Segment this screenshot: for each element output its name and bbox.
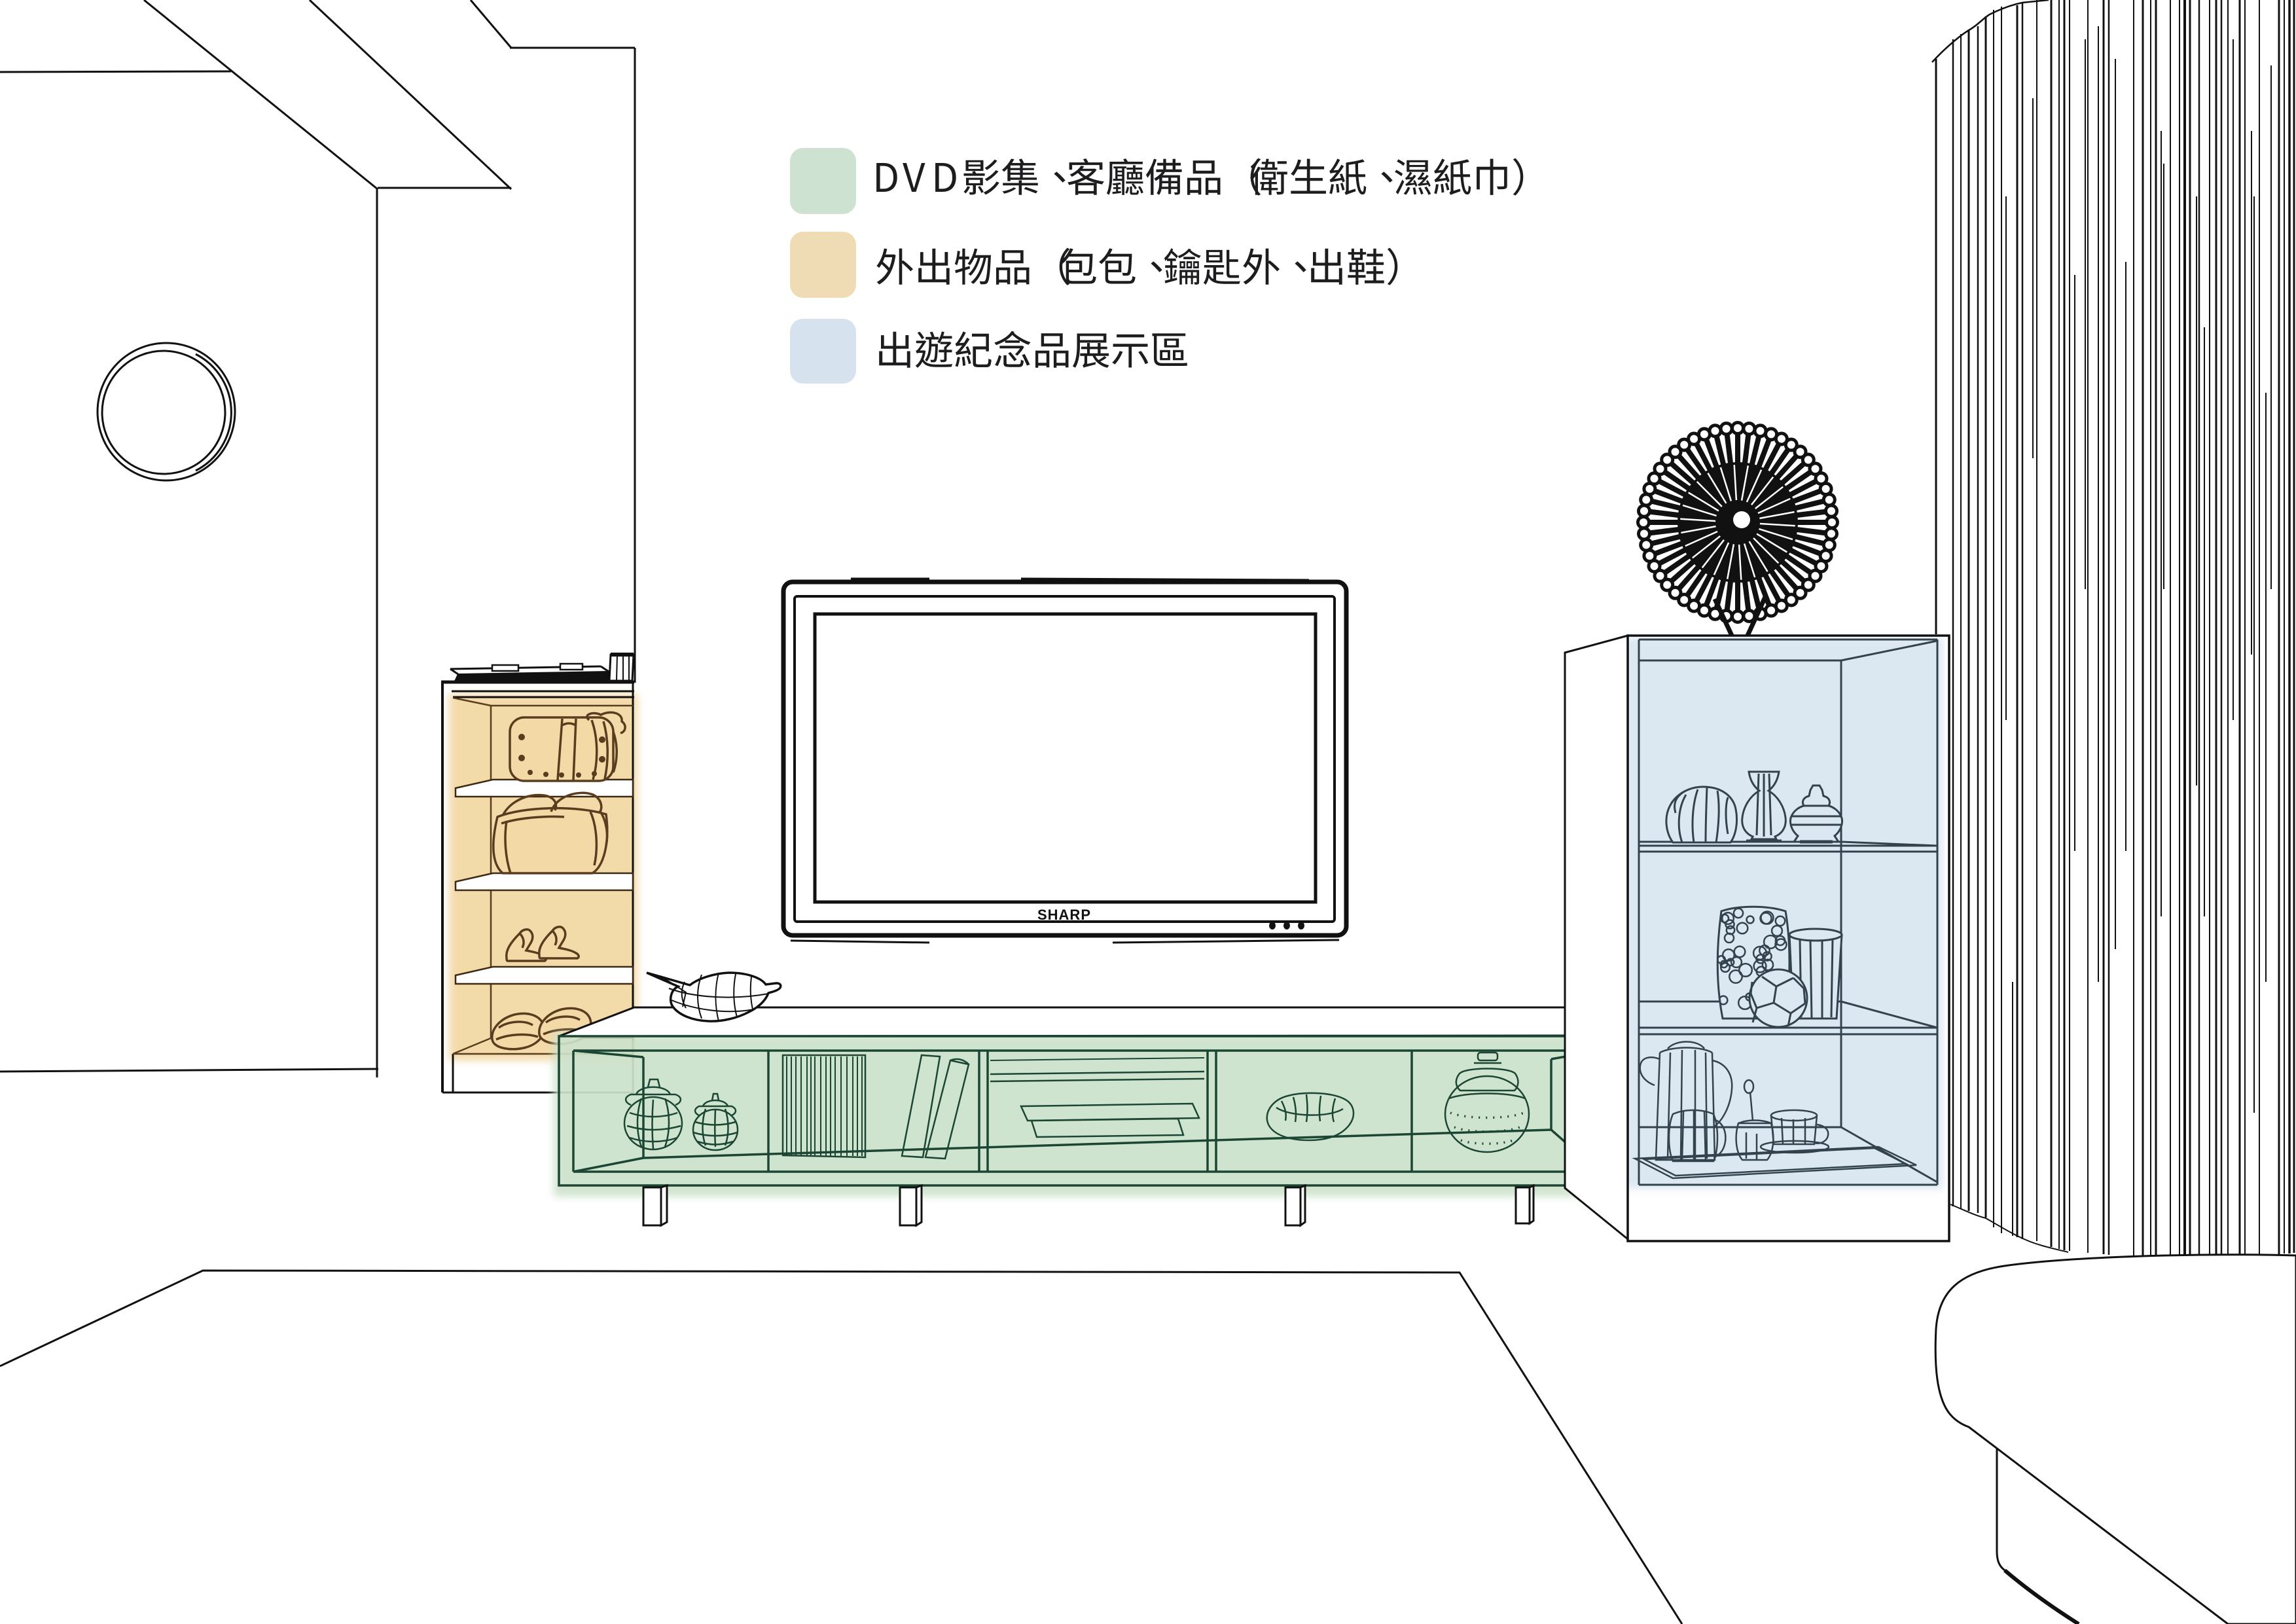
svg-text:SHARP: SHARP <box>1037 907 1091 923</box>
